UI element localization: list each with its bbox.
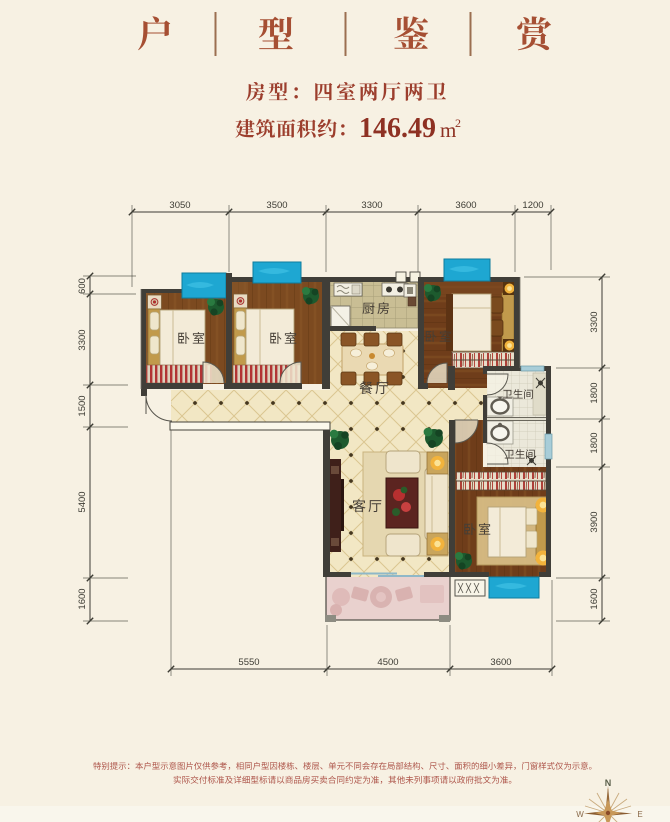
svg-text:3300: 3300 [361, 200, 382, 211]
svg-text:E: E [637, 810, 642, 819]
svg-text:3300: 3300 [77, 329, 88, 350]
svg-text:2: 2 [455, 116, 461, 130]
svg-text:1800: 1800 [589, 432, 600, 453]
svg-text:3300: 3300 [589, 311, 600, 332]
svg-text:3600: 3600 [490, 657, 511, 668]
svg-text:5550: 5550 [238, 657, 259, 668]
svg-text:600: 600 [77, 278, 88, 294]
svg-text:1600: 1600 [589, 588, 600, 609]
svg-text:3900: 3900 [589, 511, 600, 532]
svg-text:146.49: 146.49 [359, 113, 436, 144]
svg-text:3050: 3050 [169, 200, 190, 211]
svg-text:W: W [576, 810, 584, 819]
svg-text:m: m [440, 118, 456, 142]
svg-text:1200: 1200 [522, 200, 543, 211]
svg-text:N: N [605, 778, 612, 788]
svg-text:4500: 4500 [377, 657, 398, 668]
svg-text:3600: 3600 [455, 200, 476, 211]
svg-text:1500: 1500 [77, 395, 88, 416]
svg-text:1800: 1800 [589, 382, 600, 403]
svg-text:5400: 5400 [77, 491, 88, 512]
svg-text:1600: 1600 [77, 588, 88, 609]
svg-text:3500: 3500 [266, 200, 287, 211]
